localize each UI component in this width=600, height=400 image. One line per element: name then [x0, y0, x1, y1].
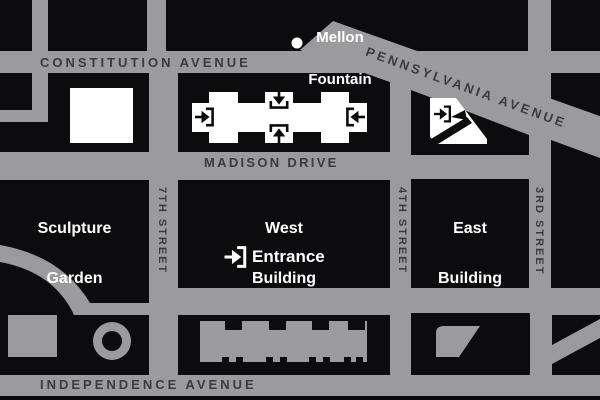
block-north-east: [551, 0, 600, 51]
sculpture-garden-label: Sculpture Garden: [0, 188, 149, 320]
block-south-east: [411, 313, 530, 375]
east-building-line1: East: [411, 221, 529, 238]
block-north-1: [48, 0, 147, 51]
block-south-edge: [0, 396, 600, 400]
west-building-line2: Building: [178, 271, 390, 288]
seventh-street-label: 7TH STREET: [156, 187, 168, 274]
block-west-upper: [0, 73, 32, 110]
block-north-west: [0, 0, 32, 51]
block-corner-lower: [552, 338, 600, 375]
mellon-fountain-label: Mellon Fountain: [297, 3, 383, 115]
block-west-lower: [0, 122, 48, 152]
block-east-of-3rd-mid: [551, 140, 600, 288]
pavilion-footprint: [70, 88, 133, 143]
sculpture-garden-line1: Sculpture: [0, 221, 149, 238]
fourth-street-label: 4TH STREET: [396, 187, 408, 274]
mellon-fountain-line2: Fountain: [297, 73, 383, 87]
hirshhorn-ring-footprint: [93, 322, 131, 360]
independence-avenue-label: INDEPENDENCE AVENUE: [40, 377, 257, 392]
west-building-line1: West: [178, 221, 390, 238]
east-building-label: East Building: [411, 188, 529, 320]
block-corner-upper: [552, 315, 600, 345]
mellon-fountain-line1: Mellon: [297, 31, 383, 45]
sculpture-garden-line2: Garden: [0, 271, 149, 288]
south-museum-footprint: [200, 321, 367, 362]
madison-drive-label: MADISON DRIVE: [204, 155, 339, 170]
constitution-avenue-label: CONSTITUTION AVENUE: [40, 55, 251, 70]
east-building-line2: Building: [411, 271, 529, 288]
nga-area-map: CONSTITUTION AVENUE MADISON DRIVE INDEPE…: [0, 0, 600, 400]
third-street-label: 3RD STREET: [533, 187, 545, 275]
entrance-label: Entrance: [252, 247, 325, 267]
south-square-footprint: [8, 315, 57, 357]
